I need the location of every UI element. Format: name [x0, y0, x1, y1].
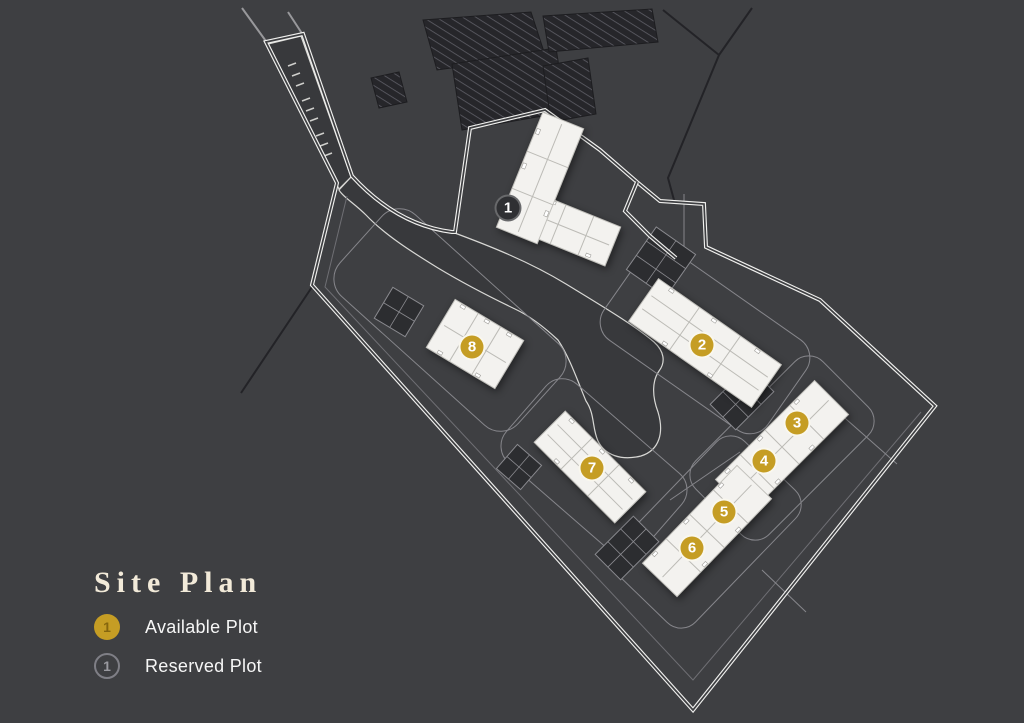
plot-marker-4[interactable]: 4 — [751, 448, 778, 475]
plot-marker-1[interactable]: 1 — [495, 195, 522, 222]
plot-marker-3[interactable]: 3 — [784, 410, 811, 437]
plot-marker-8[interactable]: 8 — [459, 334, 486, 361]
plot-marker-2[interactable]: 2 — [689, 332, 716, 359]
plot-marker-7[interactable]: 7 — [579, 455, 606, 482]
site-plan-canvas: 12345678 Site Plan 1 Available Plot 1 Re… — [0, 0, 1024, 723]
legend-label-reserved: Reserved Plot — [145, 656, 262, 677]
legend-item-reserved: 1 Reserved Plot — [94, 653, 262, 679]
legend-label-available: Available Plot — [145, 617, 258, 638]
page-title: Site Plan — [94, 566, 262, 600]
legend-item-available: 1 Available Plot — [94, 614, 262, 640]
plot-marker-5[interactable]: 5 — [711, 499, 738, 526]
reserved-plot-marker-icon: 1 — [94, 653, 120, 679]
plot-marker-6[interactable]: 6 — [679, 535, 706, 562]
available-plot-marker-icon: 1 — [94, 614, 120, 640]
legend: Site Plan 1 Available Plot 1 Reserved Pl… — [94, 566, 262, 692]
